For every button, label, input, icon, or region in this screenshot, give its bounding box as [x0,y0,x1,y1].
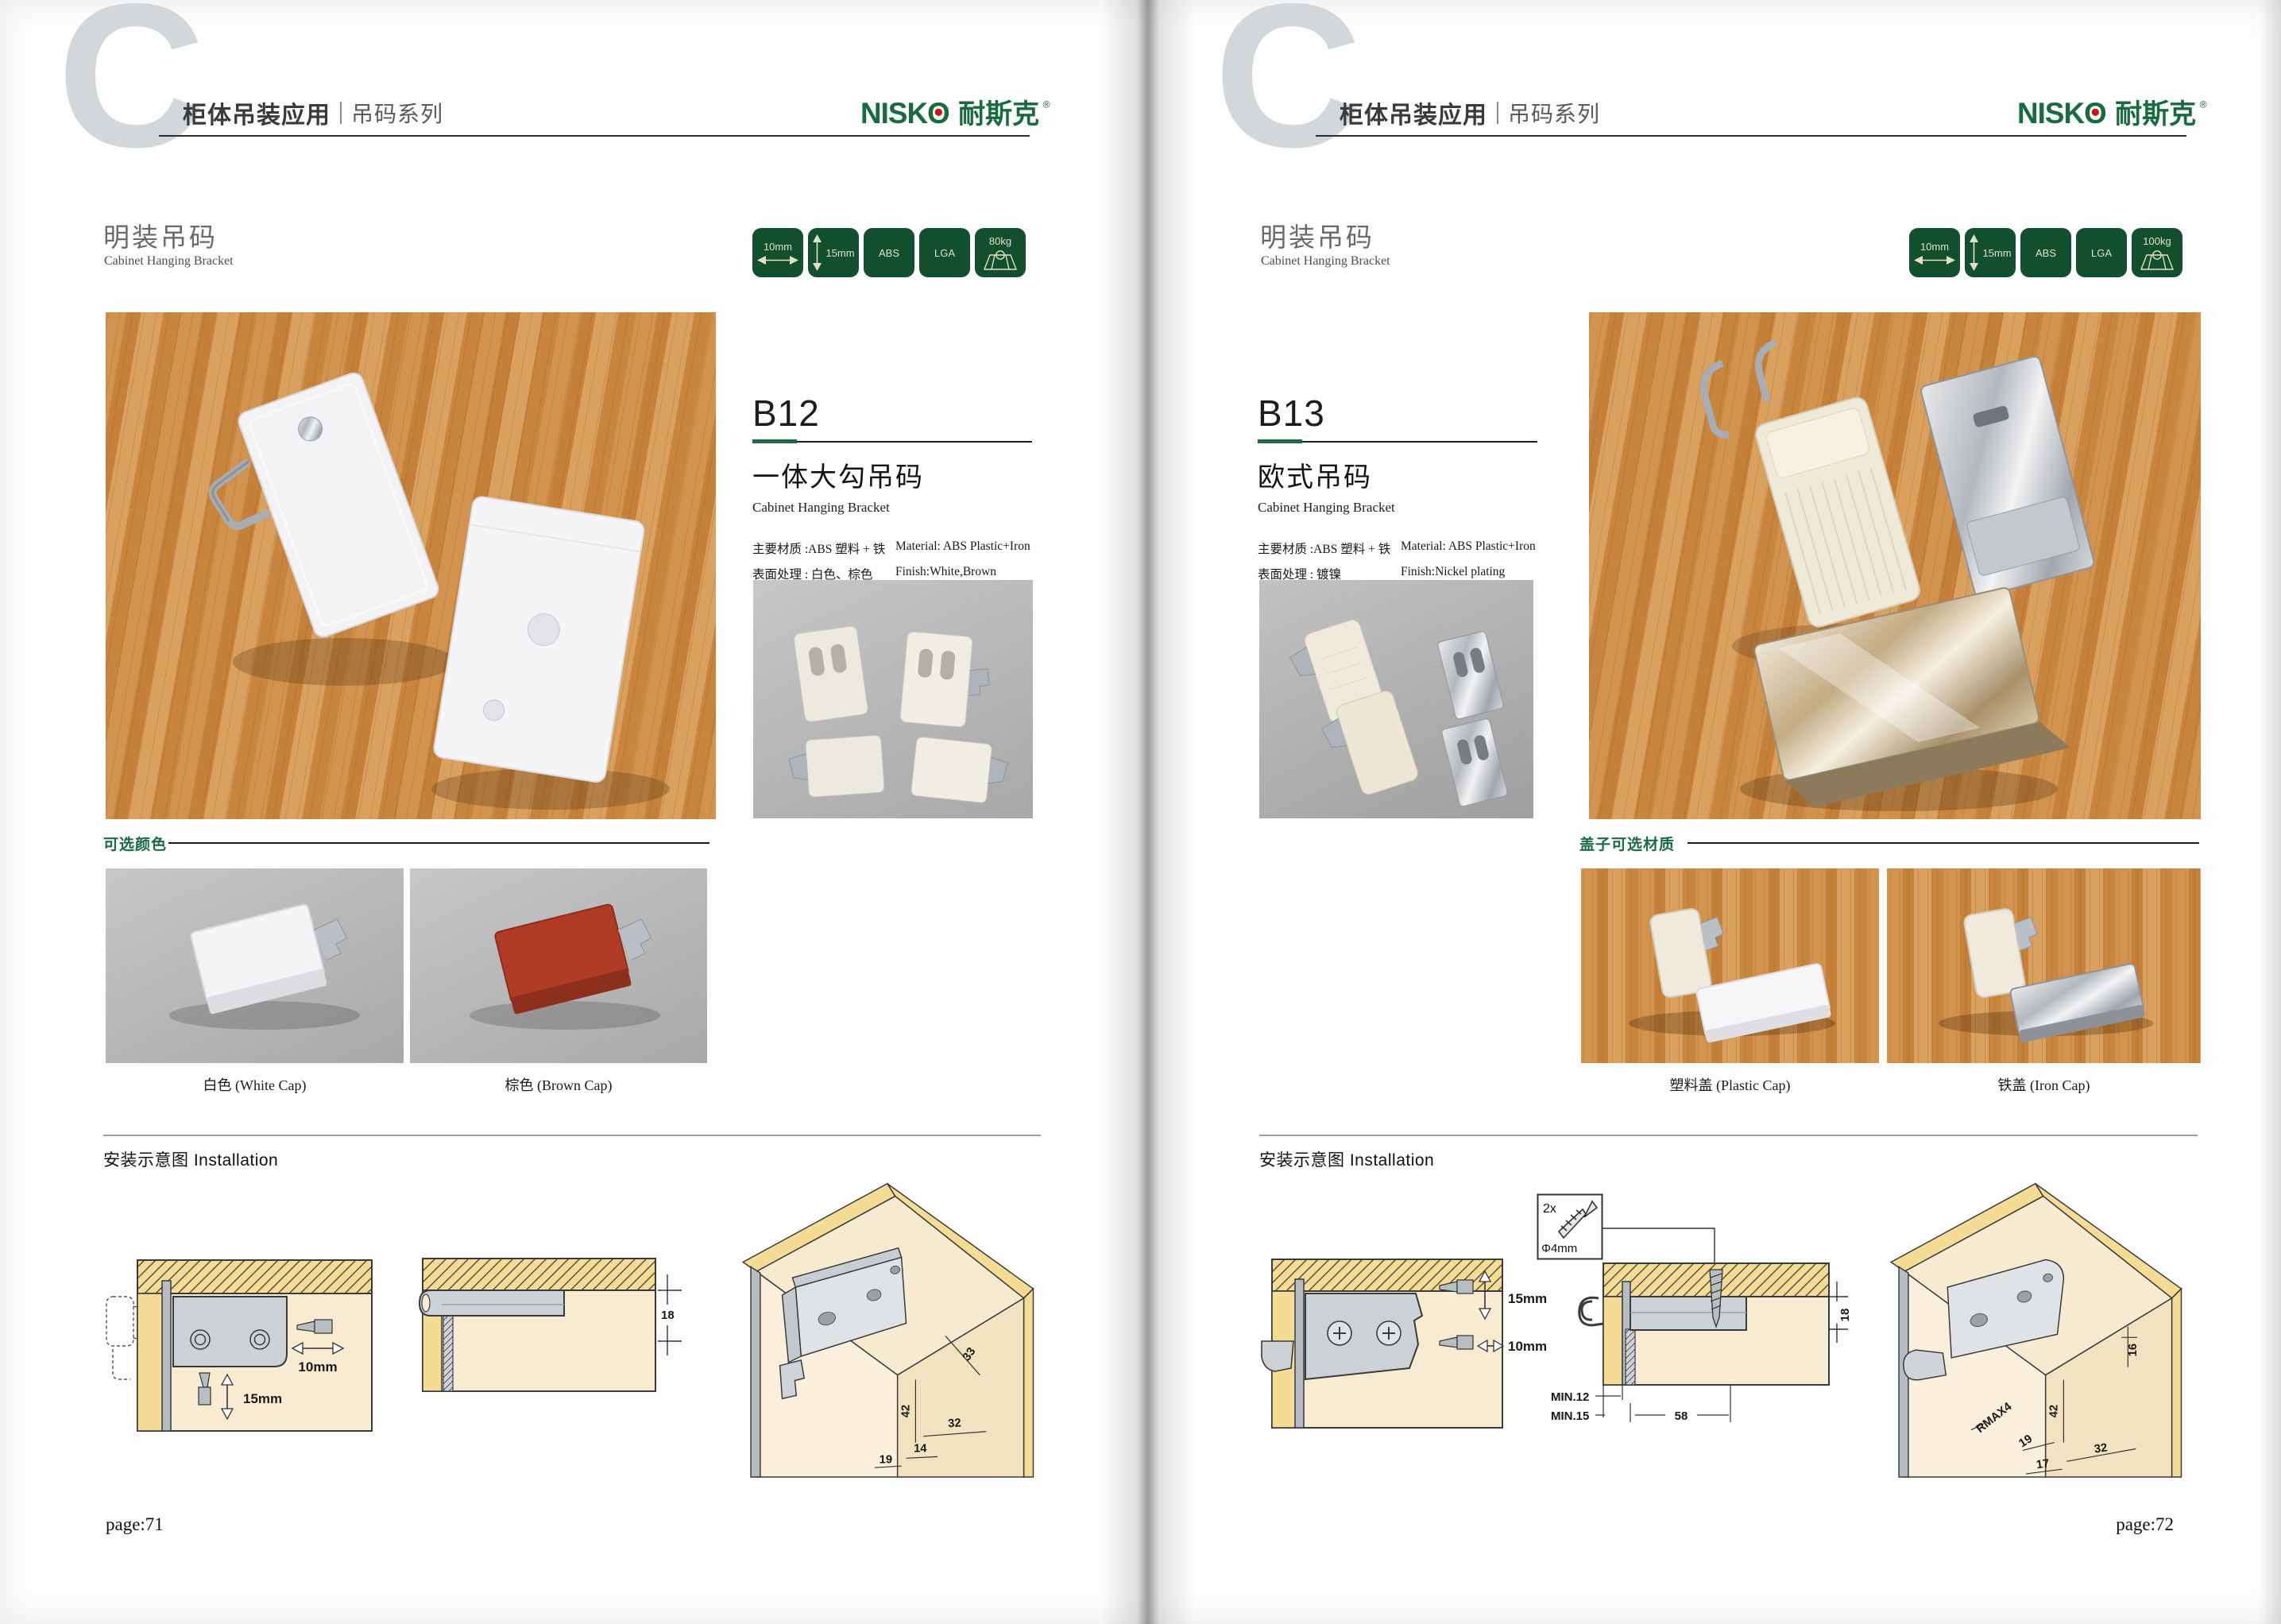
vertical-arrow-icon [812,234,822,271]
dim-18: 18 [1838,1309,1852,1322]
options-label: 盖子可选材质 [1579,833,1675,854]
metal-hooks [1703,342,1776,435]
header-subtitle: 吊码系列 [1508,102,1600,126]
page-header: 柜体吊装应用吊码系列 [1340,95,1600,130]
page-fold [1100,0,1196,1624]
option-iron-art [1887,868,2201,1063]
product-parts-art [1259,580,1533,818]
page-number: page:72 [2116,1514,2174,1535]
badge-height-label: 15mm [1982,247,2011,259]
product-specs: 主要材质 :ABS 塑料 + 铁 Material: ABS Plastic+I… [752,539,1032,582]
product-photo-main [106,312,716,819]
brand-logo: NISKO 耐斯克 ® [2017,95,2216,133]
dim-16: 16 [2127,1344,2140,1356]
dim-17: 17 [2036,1457,2051,1471]
badge-material: ABS [864,228,914,277]
dim-42: 42 [2047,1405,2060,1417]
dim-min15: MIN.15 [1551,1409,1589,1423]
dim-min12: MIN.12 [1551,1390,1589,1404]
option-photo-plastic [1581,868,1879,1063]
badge-load-label: 100kg [2143,235,2171,247]
spec-badges: 10mm 15mm ABS LGA 80kg [752,228,1026,277]
option-photo-white [106,868,404,1063]
screwdriver-vertical-icon [199,1373,211,1405]
bracket-white-rear [190,370,441,655]
badge-material: ABS [2020,228,2071,277]
page-left: C 柜体吊装应用吊码系列 NISKO 耐斯克 ® 明装吊码 Cabinet Ha… [0,0,1124,1624]
product-photo-parts [753,580,1033,818]
section-title-cn: 明装吊码 [103,216,218,254]
product-name-cn: 欧式吊码 [1258,455,1537,494]
brand-reg-mark: ® [2200,99,2207,110]
install-label: 安装示意图 Installation [103,1147,278,1171]
spec-material-en: Material: ABS Plastic+Iron [1401,539,1536,557]
load-capacity-icon [2139,249,2175,270]
header-title: 柜体吊装应用 [1340,102,1487,129]
header-rule [1316,135,2186,137]
dim-18: 18 [661,1309,675,1322]
brand-reg-mark: ® [1043,99,1050,110]
dim-10mm: 10mm [298,1359,337,1375]
badge-load: 80kg [975,228,1026,277]
header-rule [159,135,1030,137]
chapter-letter: C [1214,0,1362,178]
option-plastic-art [1581,868,1879,1063]
product-info: B13 欧式吊码 Cabinet Hanging Bracket 主要材质 :A… [1258,392,1537,590]
header-divider [1497,102,1498,124]
product-rule-accent [752,439,797,443]
dim-14: 14 [914,1442,927,1455]
badge-cert-label: LGA [934,247,955,259]
badge-height: 15mm [1965,228,2016,277]
page-right: C 柜体吊装应用吊码系列 NISKO 耐斯克 ® 明装吊码 Cabinet Ha… [1157,0,2281,1624]
catalog-spread: C 柜体吊装应用吊码系列 NISKO 耐斯克 ® 明装吊码 Cabinet Ha… [0,0,2281,1624]
install-diagram-2: 18 [413,1236,699,1395]
badge-load-label: 80kg [989,235,1011,247]
options-label: 可选颜色 [103,833,167,854]
dim-42: 42 [899,1405,912,1417]
brand-logo-cn: 耐斯克 [958,99,1039,130]
product-photo-parts [1259,580,1533,818]
badge-width-label: 10mm [1920,241,1949,253]
install-diagram-2: 18 MIN.12 MIN.15 58 [1546,1222,1864,1460]
spec-material-cn: 主要材质 :ABS 塑料 + 铁 [1258,539,1401,557]
brand-logo-cn: 耐斯克 [2115,99,2196,130]
badge-height-label: 15mm [825,247,854,259]
install-rule [1259,1135,2198,1136]
product-photo-main [1589,312,2201,819]
product-specs: 主要材质 :ABS 塑料 + 铁 Material: ABS Plastic+I… [1258,539,1537,582]
screw-qty: 2x [1543,1202,1556,1216]
page-header: 柜体吊装应用吊码系列 [183,95,443,130]
product-photo-art [1589,312,2201,819]
product-rule-accent [1258,439,1302,443]
bracket-nickel [1920,355,2095,598]
option-caption-iron: 铁盖 (Iron Cap) [1887,1074,2201,1095]
dim-19: 19 [880,1453,892,1466]
install-diagram-3: 16 42 RMAX4 19 17 32 [1859,1170,2193,1479]
badge-cert: LGA [2076,228,2127,277]
badge-width-label: 10mm [764,241,792,253]
option-caption-brown: 棕色 (Brown Cap) [410,1074,707,1095]
dim-32: 32 [948,1417,962,1430]
product-code: B13 [1258,392,1537,435]
install-rule [103,1135,1041,1136]
spec-material-en: Material: ABS Plastic+Iron [895,539,1030,557]
bracket-white-front [433,496,645,783]
badge-cert: LGA [919,228,970,277]
horizontal-arrow-icon [1914,255,1955,265]
dim-15mm: 15mm [243,1391,282,1406]
option-photo-brown [410,868,707,1063]
option-photo-iron [1887,868,2201,1063]
install-label: 安装示意图 Installation [1259,1147,1434,1171]
chapter-letter: C [57,0,205,178]
product-name-en: Cabinet Hanging Bracket [1258,500,1537,516]
badge-material-label: ABS [2036,247,2056,259]
brand-logo: NISKO 耐斯克 ® [860,95,1059,133]
header-subtitle: 吊码系列 [351,102,443,126]
logo-dot-icon [935,109,942,116]
header-title: 柜体吊装应用 [183,102,331,129]
install-diagram-1: 15mm 10mm [1260,1239,1562,1438]
dim-10mm: 10mm [1508,1339,1547,1354]
bracket-ivory [1753,395,1922,629]
badge-material-label: ABS [879,247,899,259]
option-caption-plastic: 塑料盖 (Plastic Cap) [1581,1074,1879,1095]
spec-badges: 10mm 15mm ABS LGA 100kg [1909,228,2182,277]
dim-32: 32 [2093,1441,2109,1456]
install-diagram-3: 33 42 32 14 19 [711,1170,1045,1479]
product-rule [1258,441,1537,443]
page-number: page:71 [106,1514,164,1535]
dim-58: 58 [1675,1409,1688,1423]
vertical-arrow-icon [1969,234,1979,271]
load-capacity-icon [982,249,1019,270]
product-name-en: Cabinet Hanging Bracket [752,500,1032,516]
product-info: B12 一体大勾吊码 Cabinet Hanging Bracket 主要材质 … [752,392,1032,590]
page-edge-shadow [2259,0,2281,1624]
badge-height: 15mm [808,228,859,277]
section-title-en: Cabinet Hanging Bracket [104,254,234,269]
product-code: B12 [752,392,1032,435]
spec-material-cn: 主要材质 :ABS 塑料 + 铁 [752,539,895,557]
option-brown-art [410,868,707,1063]
badge-cert-label: LGA [2091,247,2112,259]
header-divider [340,102,342,124]
option-caption-white: 白色 (White Cap) [106,1074,404,1095]
dim-15mm: 15mm [1508,1291,1547,1306]
install-diagram-1: 10mm 15mm [102,1236,376,1435]
option-white-art [106,868,404,1063]
horizontal-arrow-icon [757,255,798,265]
product-rule [752,441,1032,443]
product-name-cn: 一体大勾吊码 [752,455,1032,494]
logo-dot-icon [2092,109,2099,116]
product-photo-art [106,312,716,819]
badge-width: 10mm [1909,228,1960,277]
section-title-en: Cabinet Hanging Bracket [1261,254,1390,269]
options-rule [168,842,709,844]
product-parts-art [753,580,1033,818]
badge-width: 10mm [752,228,803,277]
options-rule [1688,842,2199,844]
section-title-cn: 明装吊码 [1260,216,1374,254]
badge-load: 100kg [2132,228,2182,277]
